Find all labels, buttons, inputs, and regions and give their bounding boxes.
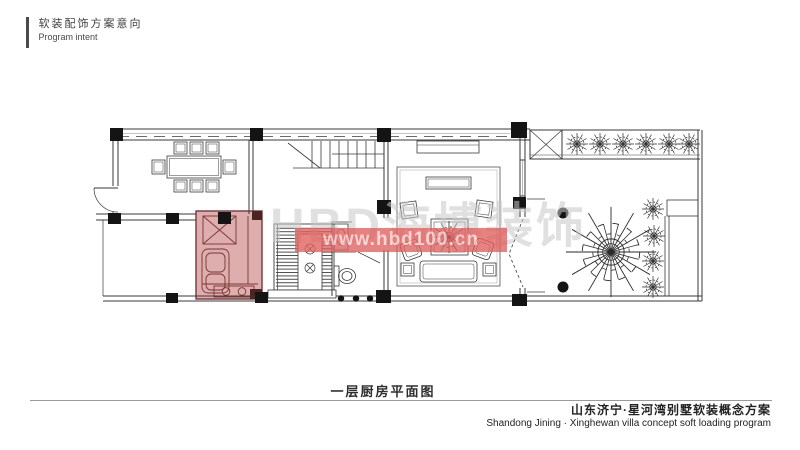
footer-block: 山东济宁·星河湾别墅软装概念方案 Shandong Jining · Xingh… (486, 404, 771, 430)
entry-door-icon (94, 188, 118, 212)
staircase (288, 141, 384, 168)
terrace-column (558, 282, 569, 293)
dining-table (167, 156, 221, 178)
dining-set (152, 142, 236, 192)
planter-row (566, 133, 700, 155)
project-title-en: Shandong Jining · Xinghewan villa concep… (486, 417, 771, 430)
project-title-cn: 山东济宁·星河湾别墅软装概念方案 (486, 404, 771, 417)
dining-chairs (152, 142, 236, 192)
toilet-icon (334, 266, 356, 286)
side-table (401, 263, 414, 276)
side-plants (642, 198, 665, 298)
kitchen-highlight (196, 211, 262, 299)
tv-cabinet (417, 141, 479, 153)
url-watermark-band: www.hbd100.cn (295, 228, 507, 252)
url-watermark-text: www.hbd100.cn (323, 229, 479, 251)
side-table (483, 263, 496, 276)
plan-caption: 一层厨房平面图 (0, 381, 766, 400)
slide: 软装配饰方案意向 Program intent (0, 0, 800, 450)
footer-divider (30, 400, 772, 401)
